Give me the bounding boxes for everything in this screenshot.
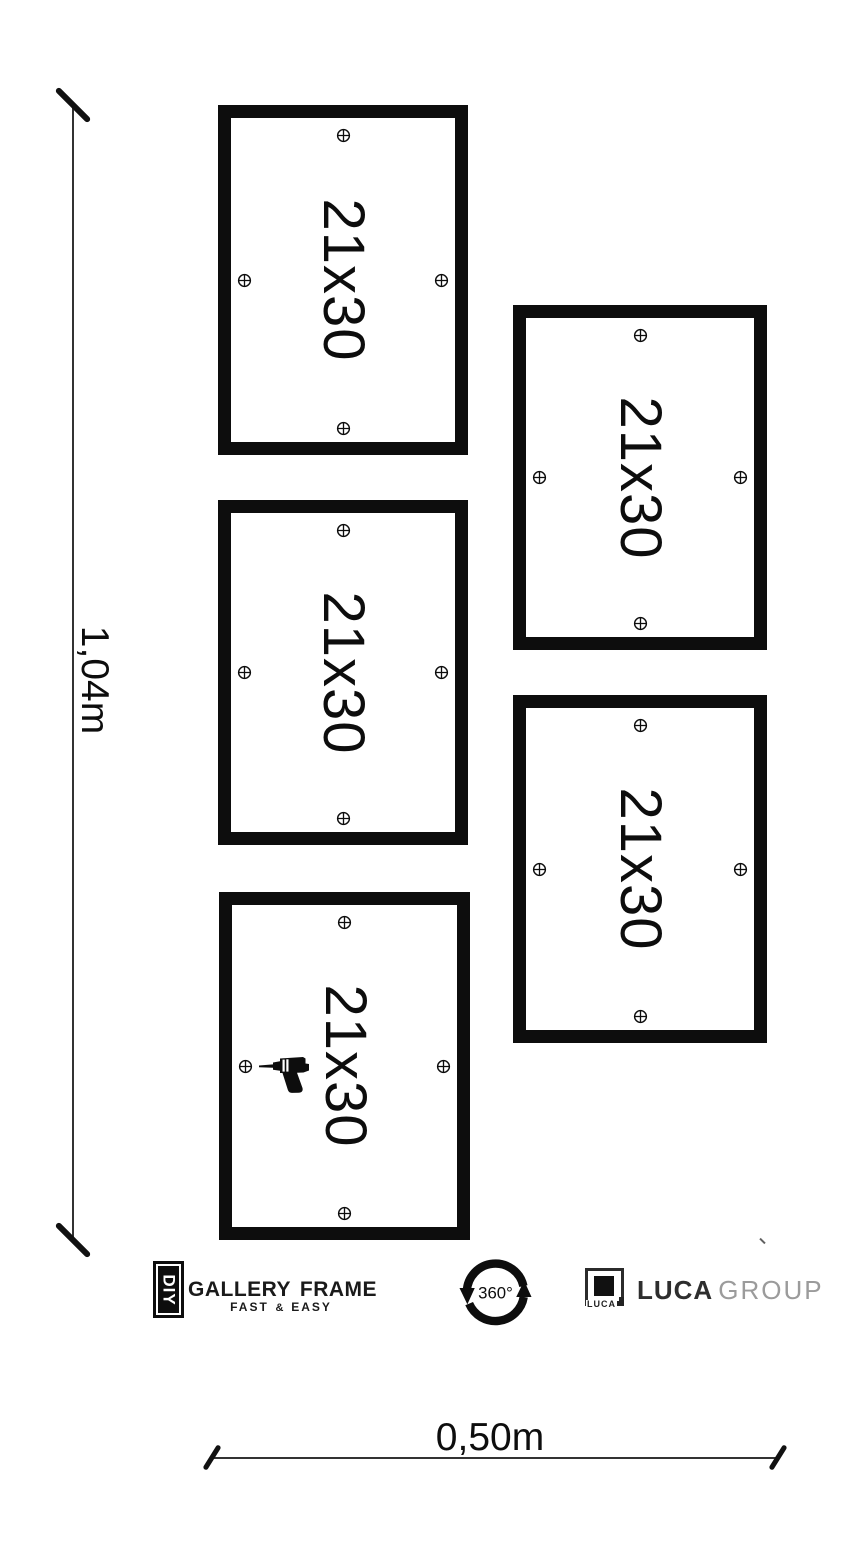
drill-icon — [258, 1051, 312, 1093]
company-suffix: GROUP — [718, 1275, 823, 1305]
tagline-ampersand: & — [276, 1302, 285, 1314]
rotation-360-label: 360° — [478, 1283, 513, 1302]
tagline-left: Fast — [230, 1296, 269, 1315]
frame-top-right: 21x30 — [513, 305, 767, 650]
brand-tagline: Fast & Easy — [230, 1296, 332, 1316]
mount-marker-icon — [733, 862, 748, 877]
tagline-right: Easy — [291, 1296, 332, 1315]
mount-marker-icon — [436, 1059, 451, 1074]
gallery-layout-diagram: 1,04m 0,50m 21x30 21x30 21x30 — [0, 0, 867, 1558]
frame-bottom-left: 21x30 — [219, 892, 470, 1240]
mount-marker-icon — [237, 273, 252, 288]
mount-marker-icon — [733, 470, 748, 485]
frame-bottom-right: 21x30 — [513, 695, 767, 1043]
mount-marker-icon — [633, 328, 648, 343]
mount-marker-icon — [434, 665, 449, 680]
company-name: LUCA — [637, 1275, 713, 1305]
mount-marker-icon — [336, 811, 351, 826]
frame-size-label: 21x30 — [611, 396, 669, 559]
mount-marker-icon — [633, 616, 648, 631]
mount-marker-icon — [336, 421, 351, 436]
mount-marker-icon — [237, 665, 252, 680]
mount-marker-icon — [336, 523, 351, 538]
mount-marker-icon — [532, 470, 547, 485]
mount-marker-icon — [336, 128, 351, 143]
mount-marker-icon — [337, 915, 352, 930]
stray-mark — [759, 1238, 765, 1244]
frame-size-label: 21x30 — [314, 198, 372, 361]
luca-logo-square — [594, 1276, 614, 1296]
diy-badge: DIY — [153, 1261, 184, 1318]
luca-logo-mark: LUCA — [585, 1268, 624, 1306]
mount-marker-icon — [337, 1206, 352, 1221]
mount-marker-icon — [434, 273, 449, 288]
height-dimension-label: 1,04m — [72, 626, 116, 734]
frame-size-label: 21x30 — [611, 787, 669, 950]
mount-marker-icon — [633, 1009, 648, 1024]
luca-logo-caption: LUCA — [586, 1300, 617, 1309]
frame-middle-left: 21x30 — [218, 500, 468, 845]
frame-top-left: 21x30 — [218, 105, 468, 455]
frame-size-label: 21x30 — [314, 591, 372, 754]
company-wordmark: LUCAGROUP — [637, 1277, 824, 1303]
mount-marker-icon — [238, 1059, 253, 1074]
diy-badge-label: DIY — [160, 1274, 177, 1305]
mount-marker-icon — [532, 862, 547, 877]
mount-marker-icon — [633, 718, 648, 733]
rotation-360-icon: 360° — [458, 1255, 533, 1330]
frame-size-label: 21x30 — [316, 984, 374, 1147]
width-dimension-label: 0,50m — [436, 1416, 544, 1460]
